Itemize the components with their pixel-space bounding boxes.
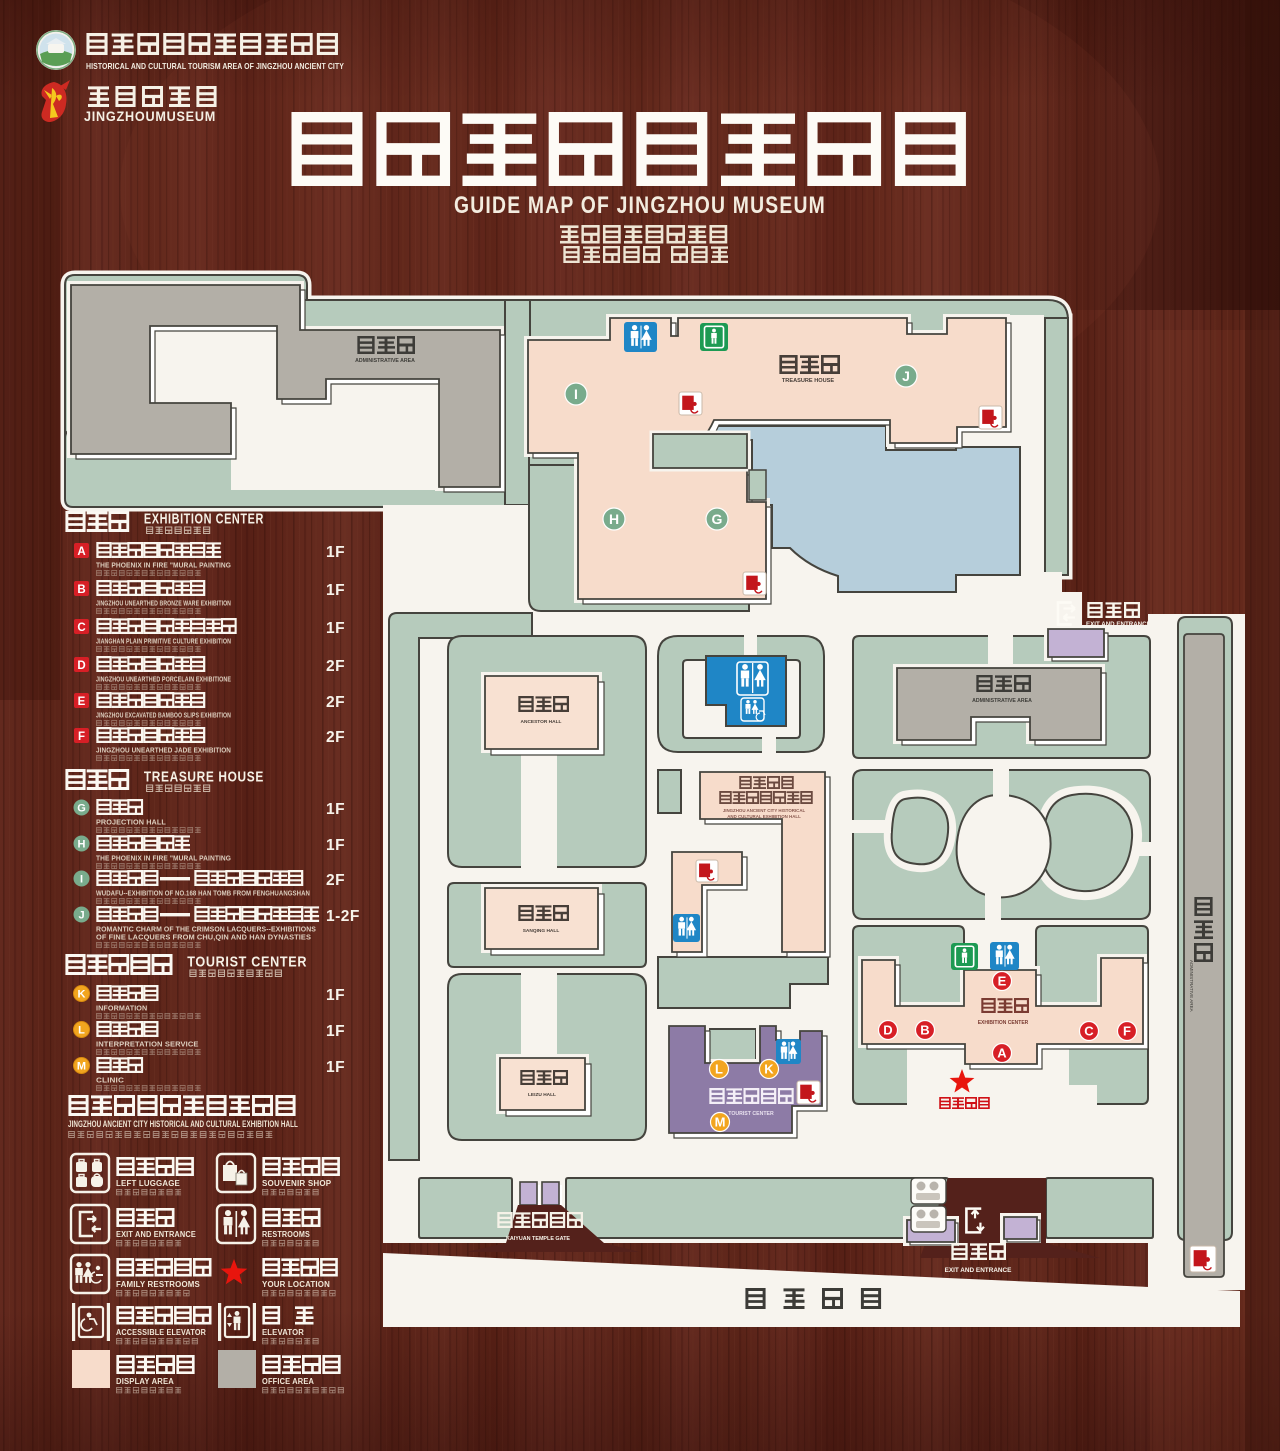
svg-text:B: B — [77, 584, 85, 596]
svg-text:OFFICE AREA: OFFICE AREA — [262, 1376, 314, 1386]
svg-text:SOUVENIR SHOP: SOUVENIR SHOP — [262, 1178, 331, 1188]
svg-text:EXIT AND ENTRANCE: EXIT AND ENTRANCE — [1086, 621, 1151, 628]
svg-text:ADMINISTRATIVE AREA: ADMINISTRATIVE AREA — [355, 358, 415, 364]
svg-text:M: M — [77, 1061, 86, 1073]
svg-text:1F: 1F — [326, 801, 345, 818]
svg-text:C: C — [77, 622, 85, 634]
svg-text:F: F — [78, 731, 85, 743]
svg-text:1F: 1F — [326, 544, 345, 561]
svg-text:GUIDE MAP OF JINGZHOU MUSEUM: GUIDE MAP OF JINGZHOU MUSEUM — [454, 192, 826, 219]
svg-text:H: H — [609, 511, 619, 527]
svg-text:I: I — [80, 874, 83, 886]
svg-text:J: J — [902, 368, 910, 384]
svg-text:THE PHOENIX IN FIRE "MURAL PAI: THE PHOENIX IN FIRE "MURAL PAINTING — [96, 561, 231, 570]
svg-text:A: A — [77, 546, 85, 558]
svg-text:K: K — [78, 989, 86, 1001]
svg-text:E: E — [998, 974, 1007, 989]
svg-text:2F: 2F — [326, 658, 345, 675]
svg-text:LEFT LUGGAGE: LEFT LUGGAGE — [116, 1178, 180, 1188]
svg-text:TREASURE HOUSE: TREASURE HOUSE — [782, 378, 834, 384]
svg-text:ANCESTOR HALL: ANCESTOR HALL — [521, 719, 562, 725]
svg-text:L: L — [78, 1025, 85, 1037]
svg-text:DISPLAY AREA: DISPLAY AREA — [116, 1376, 174, 1386]
svg-text:JIANGHAN PLAIN PRIMITIVE CULTU: JIANGHAN PLAIN PRIMITIVE CULTURE EXHIBIT… — [96, 637, 231, 646]
svg-text:EXHIBITION CENTER: EXHIBITION CENTER — [144, 511, 264, 528]
svg-text:2F: 2F — [326, 694, 345, 711]
svg-text:1F: 1F — [326, 582, 345, 599]
svg-text:EXIT AND ENTRANCE: EXIT AND ENTRANCE — [945, 1267, 1013, 1274]
svg-text:INFORMATION: INFORMATION — [96, 1004, 147, 1013]
svg-text:H: H — [78, 839, 86, 851]
svg-text:G: G — [77, 803, 86, 815]
svg-text:1-2F: 1-2F — [326, 908, 360, 925]
svg-text:CLINIC: CLINIC — [96, 1076, 125, 1085]
svg-text:D: D — [77, 660, 85, 672]
svg-text:LEIZU HALL: LEIZU HALL — [528, 1092, 556, 1098]
svg-text:THE PHOENIX IN FIRE "MURAL PAI: THE PHOENIX IN FIRE "MURAL PAINTING — [96, 854, 231, 863]
svg-text:ELEVATOR: ELEVATOR — [262, 1327, 305, 1337]
svg-text:1F: 1F — [326, 1023, 345, 1040]
svg-text:C: C — [1084, 1024, 1094, 1039]
svg-text:HISTORICAL AND CULTURAL TOURIS: HISTORICAL AND CULTURAL TOURISM AREA OF … — [86, 61, 344, 71]
svg-text:D: D — [883, 1023, 892, 1038]
svg-text:JINGZHOU EXCAVATED BAMBOO SLIP: JINGZHOU EXCAVATED BAMBOO SLIPS EXHIBITI… — [96, 711, 231, 720]
svg-text:I: I — [574, 386, 578, 402]
svg-text:WUDAFU--EXHIBITION OF NO.168 H: WUDAFU--EXHIBITION OF NO.168 HAN TOMB FR… — [96, 889, 310, 898]
svg-text:JINGZHOU UNEARTHED BRONZE WARE: JINGZHOU UNEARTHED BRONZE WARE EXHIBITIO… — [96, 599, 231, 608]
svg-text:JINGZHOU ANCIENT CITY HISTORIC: JINGZHOU ANCIENT CITY HISTORICAL — [723, 808, 806, 813]
svg-text:E: E — [78, 696, 86, 708]
svg-text:2F: 2F — [326, 729, 345, 746]
svg-text:B: B — [920, 1023, 929, 1038]
svg-text:INTERPRETATION SERVICE: INTERPRETATION SERVICE — [96, 1040, 199, 1049]
svg-text:G: G — [712, 511, 723, 527]
svg-text:J: J — [78, 910, 84, 922]
svg-text:JINGZHOU ANCIENT CITY HISTORIC: JINGZHOU ANCIENT CITY HISTORICAL AND CUL… — [68, 1119, 298, 1129]
svg-text:1F: 1F — [326, 1059, 345, 1076]
svg-text:A: A — [997, 1046, 1007, 1061]
svg-text:ACCESSIBLE ELEVATOR: ACCESSIBLE ELEVATOR — [116, 1327, 206, 1337]
svg-text:EXHIBITION CENTER: EXHIBITION CENTER — [978, 1020, 1029, 1026]
svg-text:YOUR LOCATION: YOUR LOCATION — [262, 1279, 330, 1289]
svg-text:ADMINISTRATIVE AREA: ADMINISTRATIVE AREA — [972, 698, 1032, 704]
svg-text:KAIYUAN TEMPLE GATE: KAIYUAN TEMPLE GATE — [506, 1236, 570, 1242]
svg-text:1F: 1F — [326, 837, 345, 854]
svg-text:TOURIST CENTER: TOURIST CENTER — [728, 1111, 774, 1117]
svg-text:F: F — [1123, 1024, 1131, 1039]
svg-text:TREASURE HOUSE: TREASURE HOUSE — [144, 769, 264, 786]
svg-text:AND CULTURAL EXHIBITION HALL: AND CULTURAL EXHIBITION HALL — [727, 814, 801, 819]
svg-text:OF FINE LACQUERS FROM CHU,QIN: OF FINE LACQUERS FROM CHU,QIN AND HAN DY… — [96, 933, 311, 942]
svg-text:SANQING HALL: SANQING HALL — [523, 928, 560, 934]
svg-text:JINGZHOUMUSEUM: JINGZHOUMUSEUM — [84, 109, 216, 124]
svg-text:1F: 1F — [326, 987, 345, 1004]
svg-text:L: L — [715, 1062, 723, 1077]
svg-text:K: K — [764, 1062, 774, 1077]
svg-text:M: M — [715, 1115, 726, 1130]
svg-text:PROJECTION HALL: PROJECTION HALL — [96, 818, 166, 827]
svg-text:ADMINISTRATIVE AREA: ADMINISTRATIVE AREA — [1189, 960, 1194, 1013]
svg-text:EXIT AND ENTRANCE: EXIT AND ENTRANCE — [116, 1229, 196, 1239]
svg-text:1F: 1F — [326, 620, 345, 637]
svg-text:2F: 2F — [326, 872, 345, 889]
svg-text:RESTROOMS: RESTROOMS — [262, 1229, 310, 1239]
svg-text:JINGZHOU UNEARTHED PORCELAIN E: JINGZHOU UNEARTHED PORCELAIN EXHIBITIONE — [96, 675, 231, 684]
svg-text:FAMILY RESTROOMS: FAMILY RESTROOMS — [116, 1279, 200, 1289]
svg-text:JINGZHOU UNEARTHED JADE EXHIBI: JINGZHOU UNEARTHED JADE EXHIBITION — [96, 746, 231, 755]
svg-text:TOURIST CENTER: TOURIST CENTER — [187, 954, 307, 971]
